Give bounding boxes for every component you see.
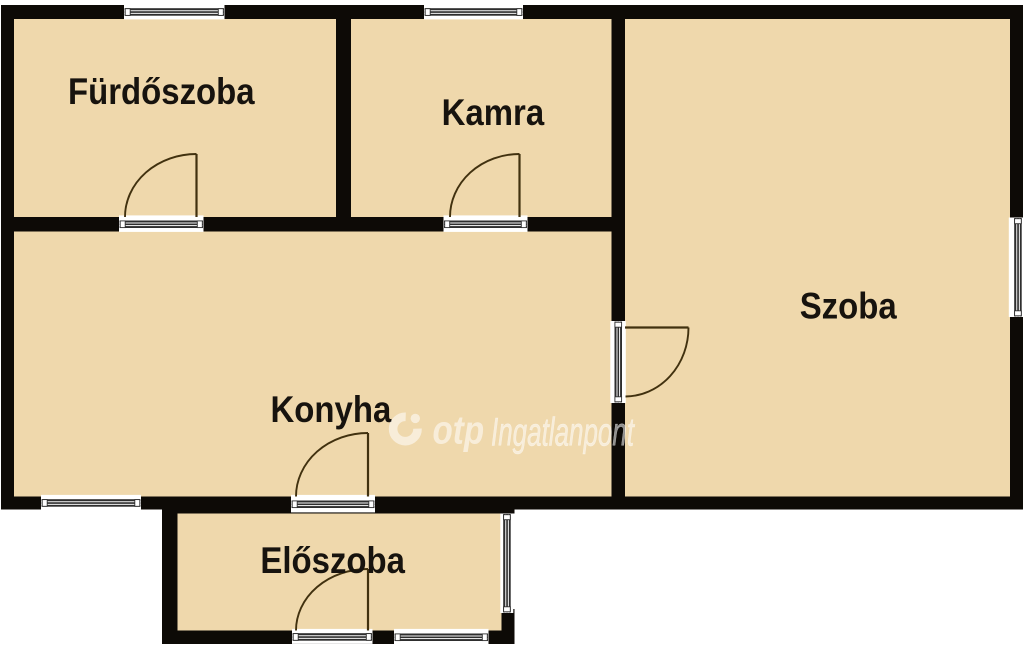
- svg-text:Előszoba: Előszoba: [260, 540, 405, 581]
- svg-text:Ingatlanpont: Ingatlanpont: [491, 410, 635, 455]
- svg-text:Konyha: Konyha: [271, 389, 392, 430]
- svg-text:otp: otp: [433, 408, 485, 453]
- svg-text:Kamra: Kamra: [442, 92, 545, 133]
- svg-text:Fürdőszoba: Fürdőszoba: [68, 71, 255, 112]
- svg-text:Szoba: Szoba: [800, 286, 897, 327]
